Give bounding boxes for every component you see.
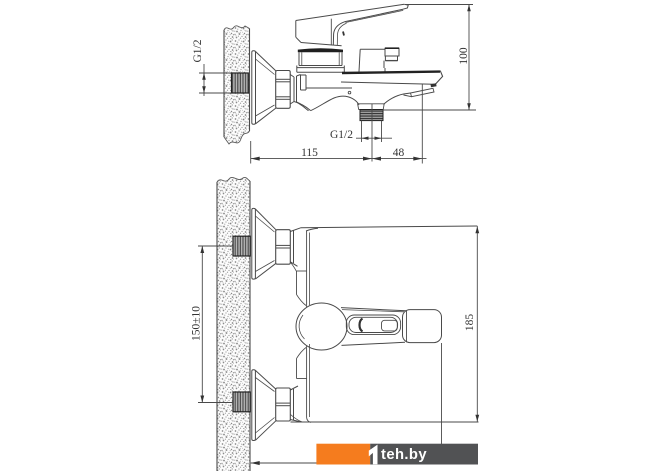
svg-text:100: 100 <box>458 47 470 65</box>
svg-text:48: 48 <box>393 147 405 159</box>
svg-text:150±10: 150±10 <box>190 306 202 341</box>
svg-text:teh.by: teh.by <box>381 447 427 463</box>
svg-text:185: 185 <box>464 314 476 332</box>
svg-text:G1/2: G1/2 <box>330 129 353 141</box>
svg-text:115: 115 <box>301 147 318 159</box>
svg-text:G1/2: G1/2 <box>192 39 204 62</box>
